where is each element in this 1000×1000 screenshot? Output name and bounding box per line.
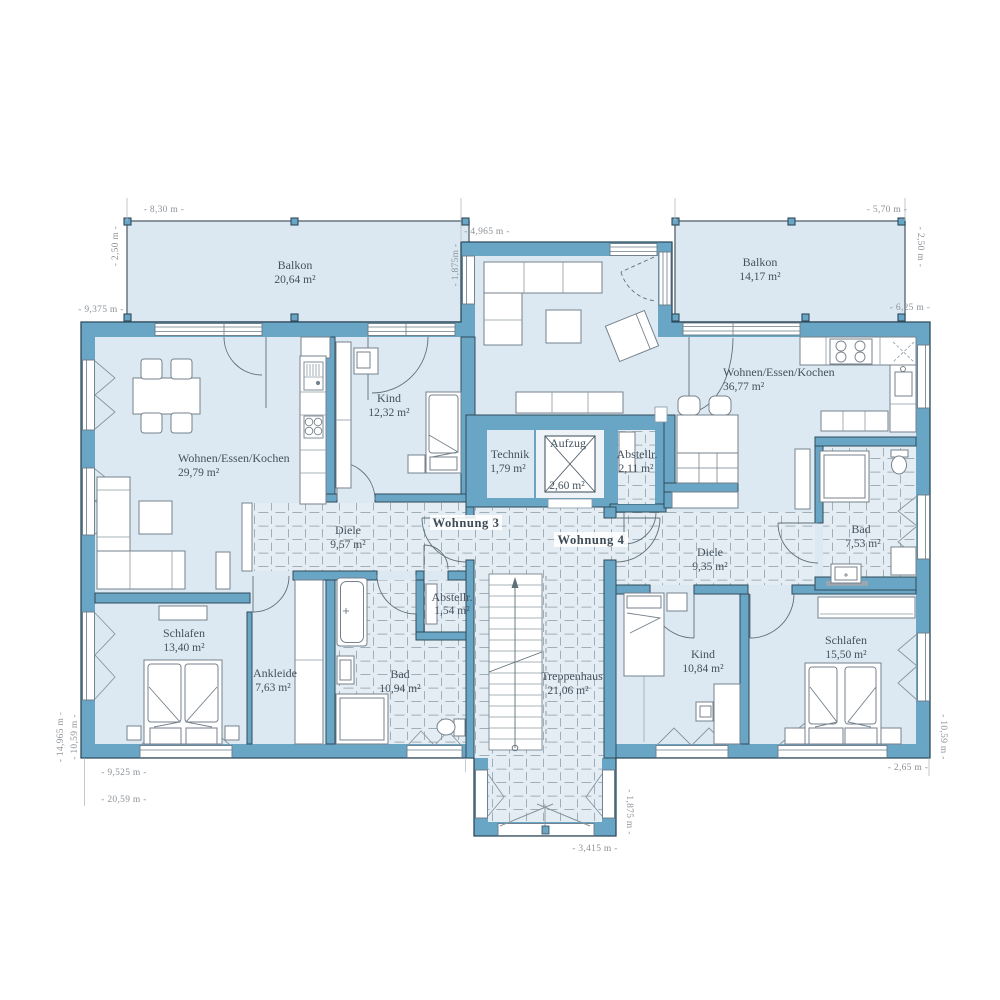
svg-text:Diele: Diele (697, 545, 723, 559)
svg-text:15,50 m²: 15,50 m² (825, 649, 867, 661)
svg-text:10,94 m²: 10,94 m² (379, 683, 421, 695)
svg-text:Schlafen: Schlafen (825, 633, 867, 647)
svg-text:- 4,965 m -: - 4,965 m - (464, 227, 510, 237)
svg-text:- 10,59 m -: - 10,59 m - (938, 714, 948, 760)
svg-text:- 8,30 m -: - 8,30 m - (144, 205, 184, 215)
svg-text:Diele: Diele (335, 523, 361, 537)
svg-text:Kind: Kind (377, 391, 401, 405)
svg-text:Ankleide: Ankleide (253, 666, 297, 680)
svg-text:12,32 m²: 12,32 m² (368, 407, 410, 419)
svg-text:1,79 m²: 1,79 m² (490, 463, 526, 475)
svg-text:- 10,59 m -: - 10,59 m - (70, 714, 80, 760)
svg-text:Bad: Bad (390, 667, 409, 681)
svg-text:- 1,875m -: - 1,875m - (451, 244, 461, 287)
svg-text:36,77 m²: 36,77 m² (723, 381, 765, 393)
svg-text:- 9,525 m -: - 9,525 m - (101, 768, 147, 778)
svg-text:- 2,50 m -: - 2,50 m - (111, 226, 121, 266)
svg-text:10,84 m²: 10,84 m² (682, 663, 724, 675)
svg-text:9,57 m²: 9,57 m² (330, 539, 366, 551)
svg-text:21,06 m²: 21,06 m² (547, 685, 589, 697)
svg-text:1,54 m²: 1,54 m² (434, 605, 470, 617)
svg-text:Wohnung 3: Wohnung 3 (433, 516, 500, 530)
svg-text:2,11 m²: 2,11 m² (619, 463, 655, 475)
svg-text:- 2,50 m -: - 2,50 m - (915, 227, 925, 267)
svg-text:- 9,375 m -: - 9,375 m - (78, 305, 124, 315)
svg-text:9,35 m²: 9,35 m² (692, 561, 728, 573)
svg-text:7,63 m²: 7,63 m² (255, 682, 291, 694)
svg-text:- 14,965 m -: - 14,965 m - (56, 712, 66, 763)
svg-text:2,60 m²: 2,60 m² (549, 480, 585, 492)
svg-text:Wohnen/Essen/Kochen: Wohnen/Essen/Kochen (178, 451, 290, 465)
svg-text:- 3,415 m -: - 3,415 m - (572, 844, 618, 854)
svg-text:Wohnen/Essen/Kochen: Wohnen/Essen/Kochen (723, 365, 835, 379)
svg-text:Treppenhaus: Treppenhaus (541, 669, 603, 683)
svg-text:- 1,875 m -: - 1,875 m - (624, 789, 634, 835)
svg-text:Technik: Technik (491, 447, 529, 461)
svg-text:- 5,70 m -: - 5,70 m - (867, 205, 907, 215)
svg-text:Abstellr.: Abstellr. (432, 590, 473, 604)
svg-text:7,53 m²: 7,53 m² (845, 538, 881, 550)
svg-text:- 6,25 m -: - 6,25 m - (890, 303, 930, 313)
svg-text:13,40 m²: 13,40 m² (163, 642, 205, 654)
svg-text:Wohnung 4: Wohnung 4 (558, 533, 625, 547)
svg-text:Balkon: Balkon (743, 255, 778, 269)
svg-text:Balkon: Balkon (278, 258, 313, 272)
svg-text:Schlafen: Schlafen (163, 626, 205, 640)
svg-text:Bad: Bad (851, 522, 870, 536)
svg-text:Kind: Kind (691, 647, 715, 661)
svg-text:Aufzug: Aufzug (550, 436, 586, 450)
svg-text:- 20,59 m -: - 20,59 m - (101, 795, 147, 805)
svg-text:- 2,65 m -: - 2,65 m - (888, 763, 928, 773)
svg-text:20,64 m²: 20,64 m² (274, 274, 316, 286)
svg-text:Abstellr.: Abstellr. (617, 447, 658, 461)
svg-text:29,79 m²: 29,79 m² (178, 467, 220, 479)
svg-text:14,17 m²: 14,17 m² (739, 271, 781, 283)
